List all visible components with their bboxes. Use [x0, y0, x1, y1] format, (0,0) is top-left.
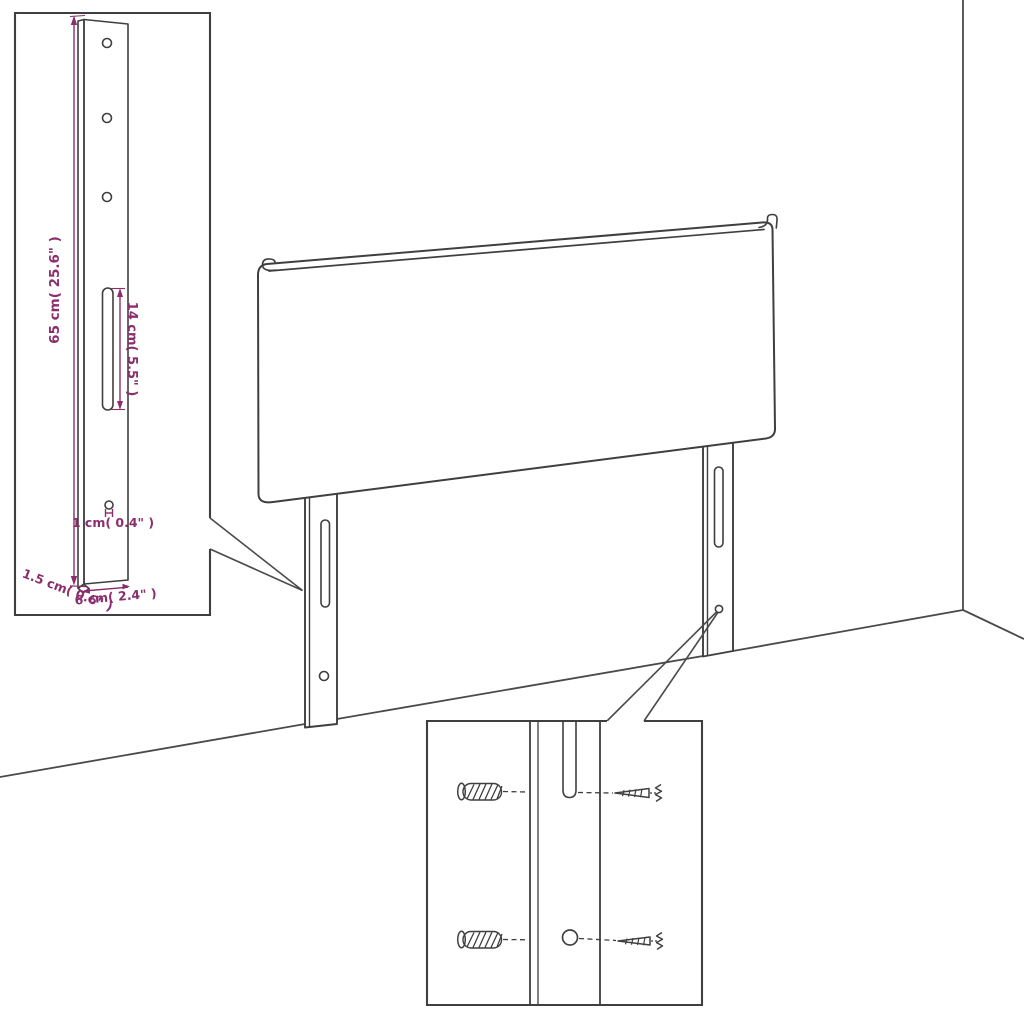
callout-wedge-left: [210, 518, 303, 591]
floor-line-right: [963, 610, 1024, 639]
hardware-detail-box-fill: [427, 721, 702, 1005]
callout-wedge-bottom: [607, 612, 718, 721]
headboard-panel-group: [258, 215, 777, 503]
callout-wedge-left-upper-line: [210, 518, 303, 591]
diagram-stage: 65 cm( 25.6" ) 14 cm( 5.5" ) 1 cm( 0.4" …: [0, 0, 1024, 1024]
floor-line-left-segment-3: [733, 610, 963, 651]
hardware-detail-box-group: [427, 612, 718, 1005]
connector-plug-top: [503, 792, 528, 793]
headboard-panel: [258, 222, 775, 502]
floor-line-left-segment-1: [0, 724, 305, 777]
headboard-dimension-diagram: 65 cm( 25.6" ) 14 cm( 5.5" ) 1 cm( 0.4" …: [0, 0, 1024, 1024]
callout-wedge-bottom-left-line: [607, 612, 717, 721]
dim-height-label: 65 cm( 25.6" ): [47, 236, 63, 344]
dim-slot-label: 14 cm( 5.5" ): [124, 302, 139, 397]
callout-wedge-bottom-right-line: [644, 613, 718, 721]
dim-hole-label: 1 cm( 0.4" ): [72, 515, 154, 530]
floor-line-left-segment-2: [337, 656, 703, 719]
